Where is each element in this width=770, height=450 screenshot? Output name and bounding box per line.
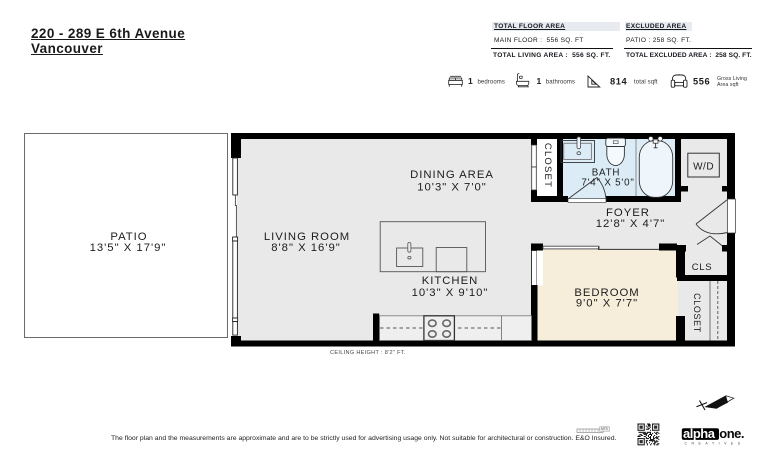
svg-text:MTS: MTS (601, 427, 608, 431)
svg-text:total sqft: total sqft (634, 79, 658, 85)
svg-text:9'0" X 7'7": 9'0" X 7'7" (576, 298, 638, 310)
svg-text:13'5" X 17'9": 13'5" X 17'9" (90, 242, 167, 254)
svg-text:W/D: W/D (693, 161, 714, 172)
svg-text:The floor plan and the measure: The floor plan and the measurements are … (111, 435, 617, 442)
svg-text:DINING AREA: DINING AREA (410, 169, 494, 181)
svg-text:8'8" X 16'9": 8'8" X 16'9" (271, 242, 341, 254)
svg-text:bathrooms: bathrooms (546, 79, 575, 85)
svg-text:CLOSET: CLOSET (542, 143, 553, 188)
svg-text:bedrooms: bedrooms (478, 79, 505, 85)
svg-text:CREATIVES: CREATIVES (685, 441, 745, 445)
svg-text:1: 1 (468, 76, 473, 86)
svg-text:814: 814 (610, 77, 628, 87)
svg-text:CLS: CLS (692, 262, 713, 273)
svg-text:10'3" X 7'0": 10'3" X 7'0" (417, 182, 487, 194)
svg-text:10'3" X 9'10": 10'3" X 9'10" (412, 287, 489, 299)
svg-text:1: 1 (537, 76, 542, 86)
svg-text:7'4" X 5'0": 7'4" X 5'0" (581, 178, 634, 189)
svg-text:one.: one. (719, 426, 744, 441)
svg-text:CLOSET: CLOSET (692, 293, 702, 333)
svg-text:KITCHEN: KITCHEN (422, 275, 479, 287)
svg-text:556: 556 (693, 77, 710, 87)
svg-text:12'8" X 4'7": 12'8" X 4'7" (596, 218, 666, 230)
svg-text:CEILING HEIGHT : 8'2" FT.: CEILING HEIGHT : 8'2" FT. (330, 350, 406, 356)
svg-text:alpha: alpha (683, 426, 716, 441)
svg-text:Area sqft: Area sqft (717, 82, 739, 88)
